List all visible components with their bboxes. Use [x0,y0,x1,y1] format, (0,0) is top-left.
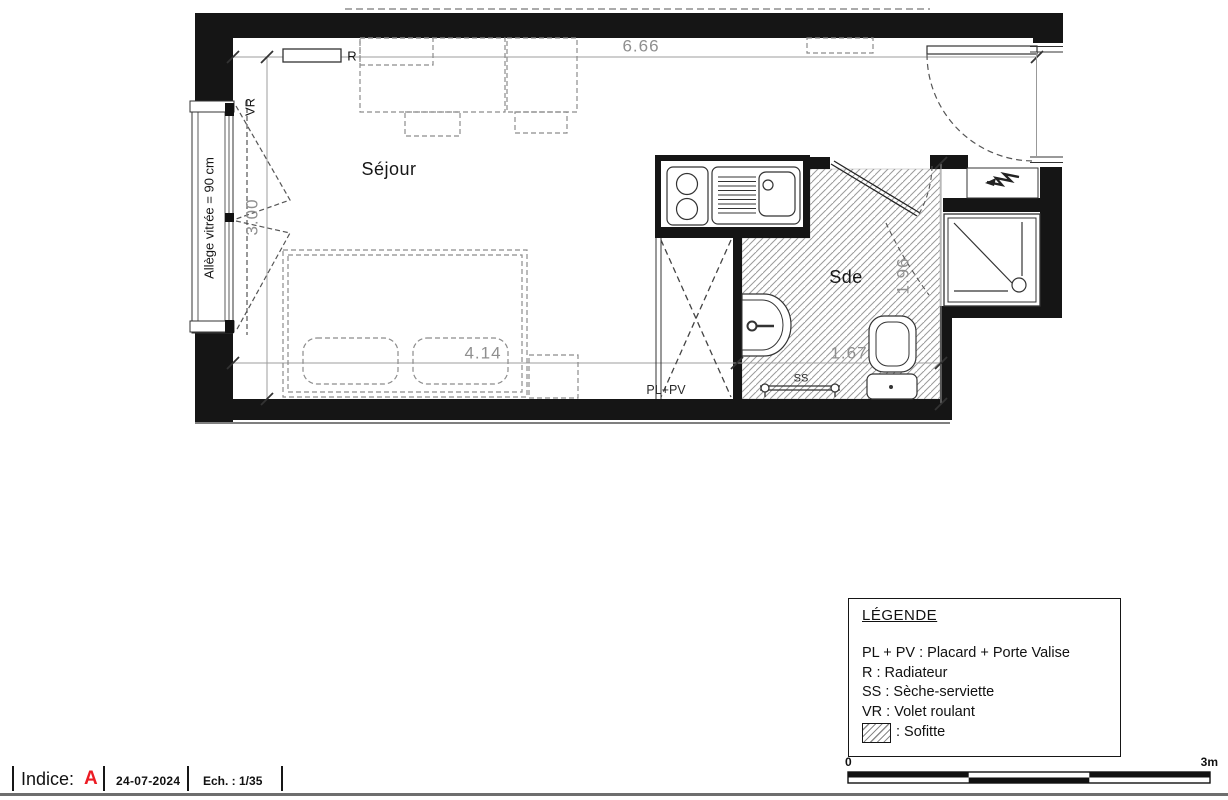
separator [281,766,283,791]
legend-title: LÉGENDE [862,607,1120,624]
hatch-swatch-icon [862,723,891,743]
legend-soffit-label: : Sofitte [896,723,945,743]
washbasin [742,294,791,356]
date-label: 24-07-2024 [116,774,180,788]
separator [12,766,14,791]
faucet-icon [763,180,773,190]
closet [656,238,731,399]
toilet [867,316,917,399]
radiator [283,49,341,62]
legend-item-radiator: R : Radiateur [862,664,1120,684]
window-sill-label: Allège vitrée = 90 cm [203,157,216,279]
dim-sde-height: 1.96 [895,257,912,294]
dim-left-height: 3.00 [244,198,261,235]
legend-box: LÉGENDE PL + PV : Placard + Porte Valise… [848,598,1121,757]
kitchen-sink [759,172,795,216]
entrance-door [927,46,1063,163]
dim-sejour-width: 4.14 [464,345,501,362]
roller-shutter-label: VR [244,98,257,116]
towel-dryer-label: SS [794,374,809,385]
dim-sde-width: 1.67 [830,345,867,362]
room-label-sde: Sde [829,268,863,286]
legend-item-roller-shutter: VR : Volet roulant [862,703,1120,723]
legend-item-soffit: : Sofitte [862,723,1120,743]
electrical-panel [967,168,1038,198]
separator [103,766,105,791]
legend-item-towel-dryer: SS : Sèche-serviette [862,683,1120,703]
indice-value: A [84,768,98,790]
floor-plan-canvas: Séjour Sde 6.66 3.00 4.14 1.67 1.96 R VR… [0,0,1228,800]
bottom-rule [0,793,1228,796]
separator [187,766,189,791]
room-label-sejour: Séjour [361,160,416,178]
kitchenette [667,167,800,225]
closet-label: PL+PV [646,384,685,397]
dim-top-width: 6.66 [622,38,659,55]
scale-label: Ech. : 1/35 [203,774,262,788]
indice-label: Indice: [21,769,74,790]
shower [944,214,1040,306]
legend-item-pl-pv: PL + PV : Placard + Porte Valise [862,644,1120,664]
radiator-label: R [347,50,356,63]
